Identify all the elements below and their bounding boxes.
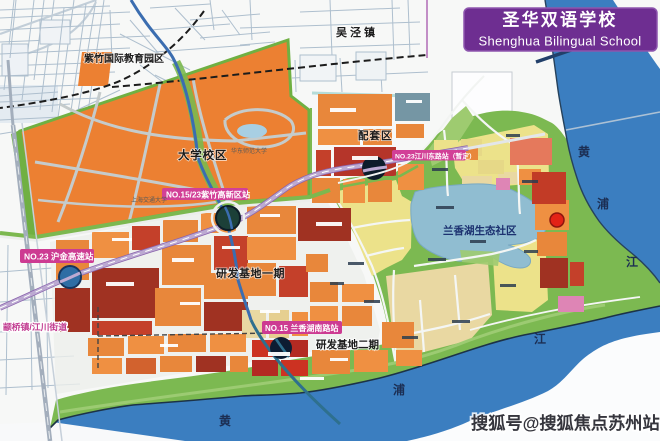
svg-text:华东师范大学: 华东师范大学 <box>231 147 267 155</box>
svg-text:搜狐号@搜狐焦点苏州站: 搜狐号@搜狐焦点苏州站 <box>471 413 660 433</box>
svg-text:吴泾镇: 吴泾镇 <box>336 25 378 39</box>
svg-text:配套区: 配套区 <box>358 129 393 142</box>
svg-text:圣华双语学校: 圣华双语学校 <box>502 10 617 30</box>
svg-text:上海交通大学: 上海交通大学 <box>131 196 167 204</box>
svg-text:紫竹国际教育园区: 紫竹国际教育园区 <box>84 52 164 65</box>
svg-text:NO.15/23紫竹高新区站: NO.15/23紫竹高新区站 <box>166 190 251 200</box>
svg-text:NO.23江川东路站（暂定）: NO.23江川东路站（暂定） <box>395 152 476 161</box>
svg-text:黄: 黄 <box>578 144 590 159</box>
svg-text:颛桥镇/江川街道: 颛桥镇/江川街道 <box>3 321 67 332</box>
svg-text:江: 江 <box>534 331 546 346</box>
svg-text:NO.15 兰香湖南路站: NO.15 兰香湖南路站 <box>265 323 338 333</box>
svg-text:浦: 浦 <box>393 382 405 397</box>
svg-text:黄: 黄 <box>219 413 231 428</box>
svg-text:研发基地二期: 研发基地二期 <box>316 338 379 351</box>
svg-text:江: 江 <box>626 254 638 269</box>
svg-text:NO.23 沪金高速站: NO.23 沪金高速站 <box>24 252 94 262</box>
svg-text:Shenghua Bilingual School: Shenghua Bilingual School <box>479 34 642 49</box>
svg-text:研发基地一期: 研发基地一期 <box>216 266 285 280</box>
svg-text:浦: 浦 <box>597 196 609 211</box>
svg-text:大学校区: 大学校区 <box>178 148 227 162</box>
svg-text:兰香湖生态社区: 兰香湖生态社区 <box>443 224 517 237</box>
